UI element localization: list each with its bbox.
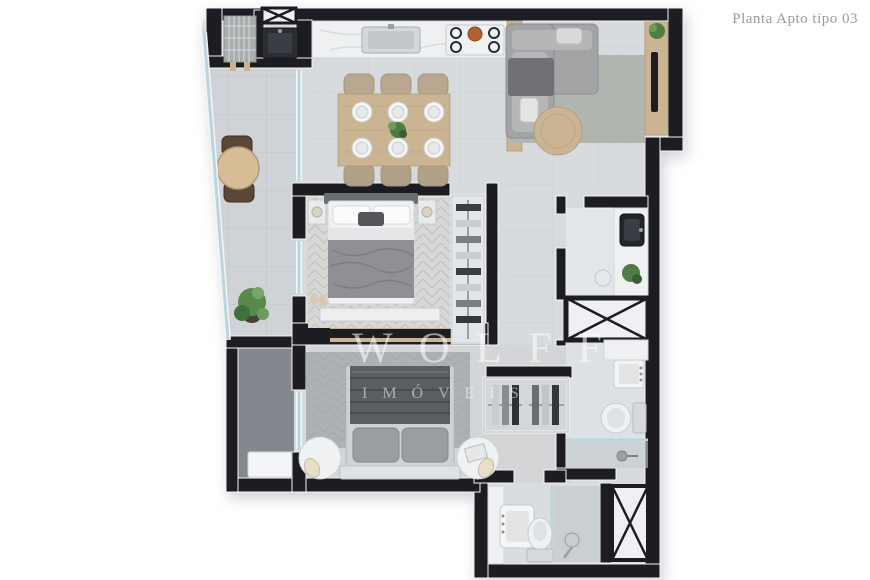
dining-chair <box>418 164 448 186</box>
shower-valve <box>617 451 627 461</box>
page-title: Planta Apto tipo 03 <box>732 11 858 27</box>
round-nightstand <box>299 437 341 479</box>
lamp <box>312 207 322 217</box>
dining-chair <box>344 164 374 186</box>
slippers <box>318 295 326 307</box>
duct-shaft-top <box>262 8 296 23</box>
watermark-brand: WOLFF <box>352 325 628 372</box>
lamp <box>422 207 432 217</box>
bedroom-1 <box>308 193 484 343</box>
sofa-pillow <box>556 28 582 44</box>
double-bed <box>324 193 418 304</box>
accent-pillow <box>358 212 384 226</box>
dining-chair <box>381 164 411 186</box>
apartment <box>202 8 683 578</box>
cooktop <box>446 25 504 55</box>
pan <box>468 27 482 41</box>
vessel-sink <box>620 214 644 246</box>
tv-panel <box>645 22 668 135</box>
watermark-tagline: IMÓVEIS <box>362 383 534 402</box>
dining <box>338 74 450 186</box>
sheet-fold <box>328 228 414 240</box>
kitchen-sink <box>362 24 420 53</box>
dining-chair <box>418 74 448 96</box>
foot-dresser <box>320 308 440 321</box>
duct-shaft-3 <box>612 486 648 560</box>
pillow <box>402 428 448 462</box>
toilet <box>601 403 646 433</box>
dining-chair <box>381 74 411 96</box>
wardrobe-with-clothes <box>452 196 484 343</box>
floorplan-page: WOLFF IMÓVEIS Planta Apto tipo 03 <box>0 0 870 580</box>
rack-leg <box>230 62 236 71</box>
throw-blanket <box>508 58 554 96</box>
slippers <box>310 293 318 305</box>
blanket <box>328 240 414 298</box>
ac-unit <box>248 452 292 477</box>
pillow <box>353 428 399 462</box>
dining-chair <box>344 74 374 96</box>
floorplan-render: WOLFF IMÓVEIS Planta Apto tipo 03 <box>0 0 870 580</box>
service-room <box>248 452 292 477</box>
sofa-pillow <box>520 98 538 122</box>
shower-floor <box>554 486 600 562</box>
utility-sink <box>262 28 298 58</box>
hamper <box>595 270 611 286</box>
double-bed <box>340 366 460 479</box>
headboard <box>340 466 460 479</box>
bistro-table <box>217 147 259 189</box>
tv <box>651 52 658 112</box>
rack-leg <box>244 62 250 71</box>
toilet <box>527 518 553 562</box>
